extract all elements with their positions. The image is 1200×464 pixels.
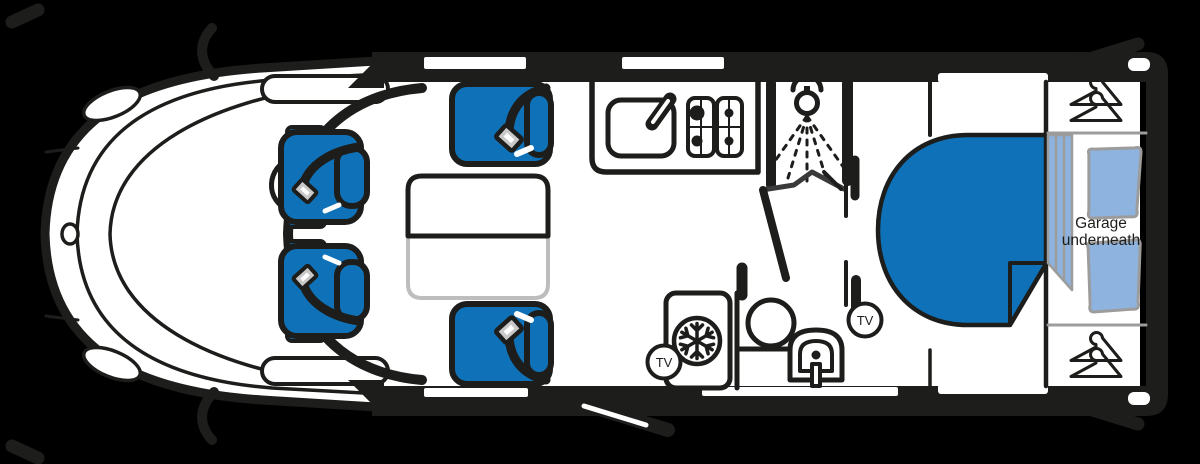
window-bedroom-bottom — [938, 384, 1048, 394]
window-lounge-top — [424, 57, 526, 69]
front-corner-trim-bottom — [12, 446, 38, 458]
island-bed — [878, 135, 1046, 325]
table-extension — [408, 236, 548, 298]
shower-wall-left — [766, 78, 776, 190]
pillow-top — [1087, 147, 1141, 219]
wing-mirror-top — [202, 28, 214, 76]
window-bedroom-top — [938, 73, 1048, 83]
travel-seat-top — [452, 84, 551, 164]
window-kitchen-top — [622, 57, 724, 69]
front-corner-trim-top — [12, 10, 38, 22]
mattress-head — [1048, 135, 1072, 290]
garage-label-line1: Garage — [1075, 215, 1127, 232]
tv-point-bedroom: TV — [849, 304, 882, 337]
basin-icon — [748, 300, 794, 346]
garage-label-line2: underneath — [1062, 232, 1140, 249]
window-washroom-bottom — [702, 387, 898, 396]
tv-label: TV — [656, 355, 673, 370]
toilet-icon — [790, 330, 842, 386]
front-badge — [62, 224, 78, 244]
window-lounge-bottom — [424, 388, 528, 397]
tv-point-lounge: TV — [648, 346, 681, 379]
wall-cap-rear-top — [1128, 58, 1150, 71]
wall-cap-rear-bottom — [1128, 392, 1150, 405]
table-top — [408, 176, 548, 236]
floorplan-canvas: TV Garage underneath TV — [0, 0, 1200, 464]
motorhome-floorplan: TV Garage underneath TV — [0, 0, 1200, 464]
cab-seat-bottom — [281, 241, 367, 341]
wing-mirror-bottom — [202, 392, 214, 440]
dining-table — [408, 176, 548, 298]
travel-seat-bottom — [452, 304, 551, 384]
cab-seat-top — [281, 127, 367, 227]
hob-icon — [688, 98, 742, 156]
tv-label: TV — [857, 313, 874, 328]
pillow-bottom — [1088, 240, 1142, 312]
